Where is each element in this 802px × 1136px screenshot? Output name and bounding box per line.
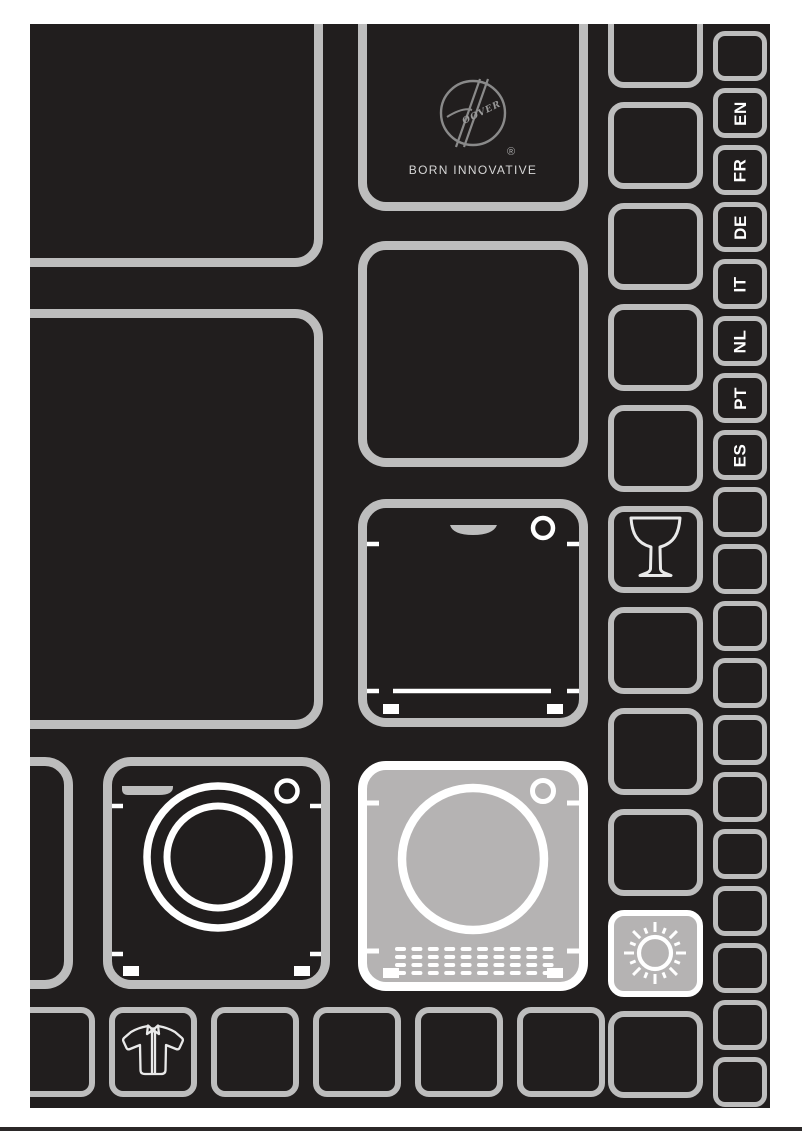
placket xyxy=(152,1033,155,1073)
appliance-foot xyxy=(383,704,399,714)
blank-square xyxy=(415,1007,503,1097)
dishwasher-icon xyxy=(367,508,579,718)
vent-grille-icon xyxy=(395,947,554,975)
language-tab-column: EN FR DE IT NL PT ES xyxy=(713,31,767,1107)
washing-machine-icon xyxy=(112,766,321,980)
blank-square xyxy=(713,772,767,822)
language-tab-it: IT xyxy=(713,259,767,309)
language-tab-pt: PT xyxy=(713,373,767,423)
symbol-column xyxy=(608,24,703,1098)
registered-mark: ® xyxy=(507,146,515,158)
bottom-square-row xyxy=(30,1007,605,1097)
blank-square xyxy=(608,708,703,795)
blank-square xyxy=(713,886,767,936)
blank-square xyxy=(608,24,703,88)
language-tab-de: DE xyxy=(713,202,767,252)
language-tab-es: ES xyxy=(713,430,767,480)
blank-tile-left-clipped xyxy=(30,757,73,989)
language-label: FR xyxy=(731,158,748,182)
hoover-logo: OOVER ® BORN INNOVATIVE xyxy=(367,24,579,202)
blank-square xyxy=(713,601,767,651)
blank-square xyxy=(713,1000,767,1050)
blank-tile-center xyxy=(358,241,588,467)
handle-icon xyxy=(450,525,497,535)
knob-icon xyxy=(533,781,554,802)
door-icon xyxy=(402,788,544,930)
blank-square xyxy=(713,715,767,765)
blank-square xyxy=(608,102,703,189)
sun-tile xyxy=(608,910,703,997)
language-label: NL xyxy=(731,329,748,353)
blank-square xyxy=(713,943,767,993)
blank-square xyxy=(608,607,703,694)
blank-square xyxy=(30,1007,95,1097)
language-label: ES xyxy=(732,443,749,467)
language-tab-nl: NL xyxy=(713,316,767,366)
cover-canvas: OOVER ® BORN INNOVATIVE xyxy=(30,24,770,1108)
blank-square xyxy=(608,203,703,290)
sun-icon xyxy=(614,915,697,992)
knob-icon xyxy=(533,518,553,538)
appliance-foot xyxy=(547,704,563,714)
blank-tile-left-large xyxy=(30,309,323,729)
blank-square xyxy=(713,31,767,81)
blank-square xyxy=(713,658,767,708)
door-inner-icon xyxy=(167,806,269,908)
blank-square xyxy=(608,1011,703,1098)
language-tab-fr: FR xyxy=(713,145,767,195)
footer-rule xyxy=(0,1127,802,1131)
blank-square xyxy=(313,1007,401,1097)
appliance-foot xyxy=(294,966,310,976)
blank-square xyxy=(713,1057,767,1107)
blank-square xyxy=(713,487,767,537)
blank-square xyxy=(608,304,703,391)
blank-square xyxy=(608,405,703,492)
manual-cover-page: OOVER ® BORN INNOVATIVE xyxy=(0,0,802,1136)
appliance-foot xyxy=(383,968,399,978)
logo-tile: OOVER ® BORN INNOVATIVE xyxy=(358,24,588,211)
tumble-dryer-icon xyxy=(367,770,579,982)
knob-icon xyxy=(277,781,298,802)
language-label: IT xyxy=(731,276,748,292)
brand-tagline: BORN INNOVATIVE xyxy=(409,163,537,177)
blank-square xyxy=(211,1007,299,1097)
detergent-drawer-icon xyxy=(122,786,173,795)
blank-square xyxy=(517,1007,605,1097)
blank-tile-top-left xyxy=(30,24,323,267)
language-label: EN xyxy=(732,101,749,126)
shirt-icon xyxy=(115,1013,191,1091)
wine-glass-icon xyxy=(614,512,697,587)
language-tab-en: EN xyxy=(713,88,767,138)
shirt-tile xyxy=(109,1007,197,1097)
dishwasher-tile xyxy=(358,499,588,727)
blank-square xyxy=(713,544,767,594)
language-label: DE xyxy=(732,215,749,240)
washing-machine-tile xyxy=(103,757,330,989)
appliance-foot xyxy=(123,966,139,976)
appliance-foot xyxy=(547,968,563,978)
blank-square xyxy=(713,829,767,879)
wine-glass-tile xyxy=(608,506,703,593)
blank-square xyxy=(608,809,703,896)
tumble-dryer-tile xyxy=(358,761,588,991)
language-label: PT xyxy=(731,387,748,410)
